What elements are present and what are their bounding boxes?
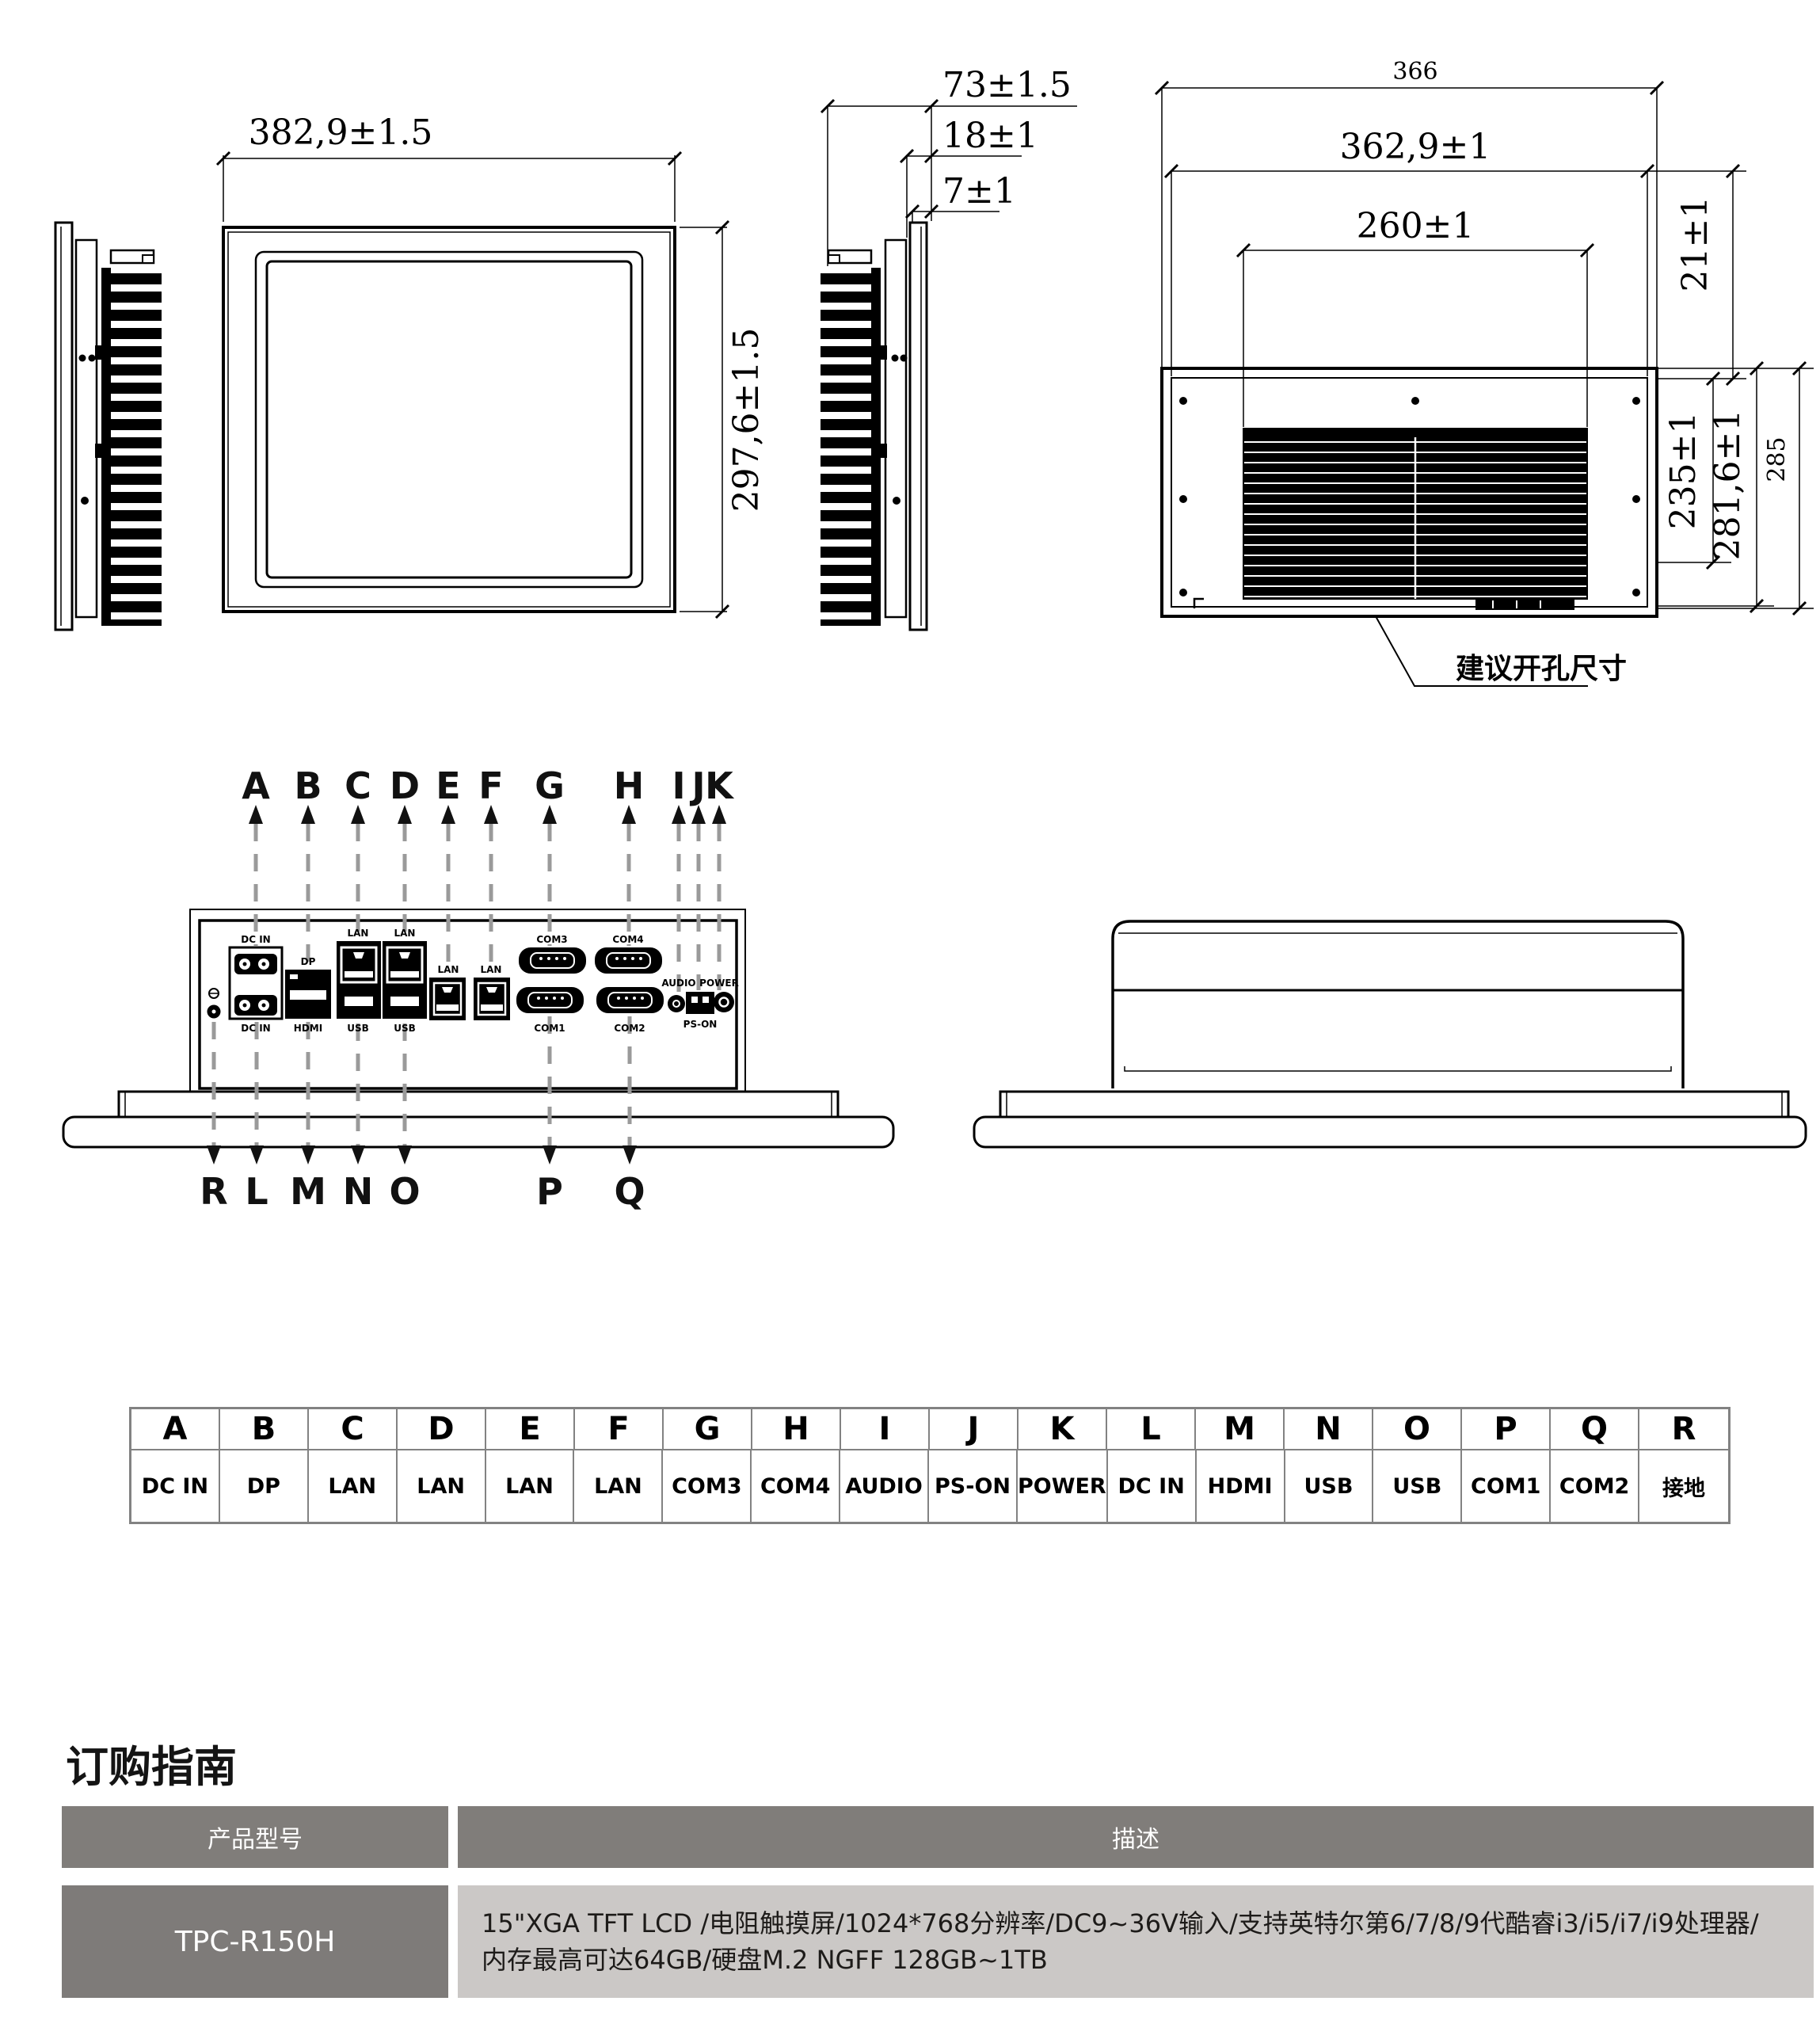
- ordering-title: 订购指南: [66, 1732, 237, 1794]
- arrowhead-down-icon: [351, 1145, 365, 1164]
- panel-port-label: DC IN: [241, 934, 270, 945]
- map-letter-B: B: [220, 1409, 309, 1450]
- map-label-B: DP: [220, 1450, 309, 1522]
- map-label-K: POWER: [1018, 1450, 1108, 1522]
- map-label-P: COM1: [1462, 1450, 1551, 1522]
- annot-letter-B: B: [294, 764, 322, 807]
- map-label-D: LAN: [398, 1450, 486, 1522]
- map-label-L: DC IN: [1108, 1450, 1197, 1522]
- annot-letter-L: L: [245, 1170, 268, 1213]
- map-label-J: PS-ON: [929, 1450, 1018, 1522]
- map-letter-O: O: [1373, 1409, 1462, 1450]
- arrowhead-up-icon: [691, 805, 706, 824]
- panel-port-label: PS-ON: [683, 1019, 718, 1030]
- dim-heatsink-width: 260±1: [1357, 206, 1475, 246]
- map-letter-P: P: [1462, 1409, 1551, 1450]
- panel-port-label: COM3: [536, 934, 567, 945]
- map-label-C: LAN: [309, 1450, 398, 1522]
- map-label-H: COM4: [752, 1450, 840, 1522]
- side-view-left: [55, 223, 162, 630]
- map-label-F: LAN: [574, 1450, 663, 1522]
- arrowhead-down-icon: [398, 1145, 412, 1164]
- dim-side-total: 73±1.5: [942, 65, 1072, 105]
- panel-port-label: LAN: [481, 964, 502, 975]
- annot-letter-F: F: [478, 764, 503, 807]
- annot-letter-H: H: [614, 764, 645, 807]
- map-label-G: COM3: [663, 1450, 752, 1522]
- panel-port-label: DP: [301, 956, 316, 967]
- map-letter-C: C: [309, 1409, 398, 1450]
- arrowhead-up-icon: [484, 805, 498, 824]
- panel-port-label: LAN: [394, 928, 416, 939]
- annot-letter-P: P: [536, 1170, 563, 1213]
- port-map-letters-row: ABCDEFGHIJKLMNOPQR: [131, 1409, 1728, 1450]
- annot-letter-M: M: [290, 1170, 326, 1213]
- map-letter-H: H: [752, 1409, 841, 1450]
- side-view-mid: 73±1.5 18±1 7±1: [821, 65, 1077, 630]
- annot-letter-G: G: [535, 764, 565, 807]
- map-letter-K: K: [1019, 1409, 1107, 1450]
- dim-rear-total-width: 366: [1392, 58, 1437, 86]
- dim-rear-height: 281,6±1: [1708, 410, 1748, 561]
- panel-port-label: COM1: [534, 1023, 565, 1034]
- panel-port-label: LAN: [348, 928, 369, 939]
- port-map-labels-row: DC INDPLANLANLANLANCOM3COM4AUDIOPS-ONPOW…: [131, 1450, 1728, 1522]
- dim-front-width: 382,9±1.5: [249, 112, 433, 153]
- arrowhead-down-icon: [207, 1145, 221, 1164]
- annot-letter-O: O: [389, 1170, 420, 1213]
- annot-letter-C: C: [345, 764, 371, 807]
- cutout-note: 建议开孔尺寸: [1456, 653, 1627, 685]
- map-letter-J: J: [930, 1409, 1019, 1450]
- panel-port-label: AUDIO: [661, 978, 695, 989]
- map-letter-F: F: [575, 1409, 664, 1450]
- rear-view: 366 362,9±1 260±1 21±1 235±1 281,6±1: [1156, 58, 1814, 686]
- arrowhead-down-icon: [301, 1145, 315, 1164]
- panel-port-label: COM2: [614, 1023, 645, 1034]
- front-view: 382,9±1.5 297,6±1.5: [217, 112, 767, 618]
- technical-drawings: 382,9±1.5 297,6±1.5 73±1.5 18±1: [0, 0, 1820, 1236]
- dim-heatsink-height: 235±1: [1663, 412, 1704, 530]
- map-letter-E: E: [486, 1409, 575, 1450]
- arrowhead-up-icon: [249, 805, 263, 824]
- map-letter-G: G: [664, 1409, 752, 1450]
- dim-rear-offset: 21±1: [1675, 196, 1715, 292]
- panel-port-label: HDMI: [294, 1023, 322, 1034]
- map-letter-A: A: [131, 1409, 220, 1450]
- map-letter-R: R: [1639, 1409, 1728, 1450]
- annot-letter-R: R: [200, 1170, 227, 1213]
- dim-side-front: 7±1: [942, 171, 1016, 212]
- annot-letter-D: D: [390, 764, 420, 807]
- map-letter-M: M: [1196, 1409, 1285, 1450]
- arrowhead-up-icon: [351, 805, 365, 824]
- arrowhead-up-icon: [672, 805, 686, 824]
- dim-rear-total-height: 285: [1763, 436, 1791, 482]
- annot-letter-N: N: [343, 1170, 374, 1213]
- panel-port-label: USB: [347, 1023, 369, 1034]
- ordering-header-model: 产品型号: [62, 1806, 448, 1868]
- map-letter-I: I: [841, 1409, 930, 1450]
- ordering-desc-line2: 内存最高可达64GB/硬盘M.2 NGFF 128GB~1TB: [482, 1942, 1048, 1978]
- annot-letter-A: A: [242, 764, 270, 807]
- map-label-E: LAN: [486, 1450, 575, 1522]
- arrowhead-down-icon: [543, 1145, 557, 1164]
- arrowhead-up-icon: [441, 805, 455, 824]
- annot-letter-E: E: [436, 764, 460, 807]
- dim-side-mid: 18±1: [942, 116, 1038, 156]
- port-map-table: ABCDEFGHIJKLMNOPQR DC INDPLANLANLANLANCO…: [129, 1407, 1731, 1524]
- arrowhead-up-icon: [622, 805, 636, 824]
- annot-letter-Q: Q: [614, 1170, 645, 1213]
- ordering-header-desc: 描述: [458, 1806, 1814, 1868]
- annot-letter-I: I: [672, 764, 685, 807]
- ordering-desc-line1: 15"XGA TFT LCD /电阻触摸屏/1024*768分辨率/DC9~36…: [482, 1905, 1759, 1942]
- annot-letter-J: J: [689, 764, 705, 807]
- arrowhead-down-icon: [623, 1145, 637, 1164]
- map-label-A: DC IN: [131, 1450, 220, 1522]
- arrowhead-up-icon: [712, 805, 726, 824]
- bottom-port-view: [63, 909, 893, 1147]
- map-label-I: AUDIO: [840, 1450, 929, 1522]
- panel-port-label: LAN: [438, 964, 459, 975]
- arrowhead-up-icon: [543, 805, 557, 824]
- ordering-model-cell: TPC-R150H: [62, 1885, 448, 1998]
- panel-port-label: COM4: [612, 934, 643, 945]
- datasheet-page: 382,9±1.5 297,6±1.5 73±1.5 18±1: [0, 0, 1820, 2043]
- map-label-O: USB: [1373, 1450, 1462, 1522]
- panel-port-label: POWER: [699, 978, 739, 989]
- map-letter-Q: Q: [1551, 1409, 1639, 1450]
- dim-front-height: 297,6±1.5: [726, 328, 767, 513]
- map-label-Q: COM2: [1551, 1450, 1639, 1522]
- map-label-N: USB: [1285, 1450, 1374, 1522]
- map-label-M: HDMI: [1197, 1450, 1285, 1522]
- map-letter-N: N: [1285, 1409, 1373, 1450]
- panel-port-label: USB: [394, 1023, 416, 1034]
- ordering-desc-cell: 15"XGA TFT LCD /电阻触摸屏/1024*768分辨率/DC9~36…: [458, 1885, 1814, 1998]
- annot-letter-K: K: [705, 764, 735, 807]
- map-letter-L: L: [1107, 1409, 1196, 1450]
- map-label-R: 接地: [1639, 1450, 1728, 1522]
- arrowhead-up-icon: [398, 805, 412, 824]
- panel-port-label: DC IN: [241, 1023, 270, 1034]
- map-letter-D: D: [398, 1409, 486, 1450]
- arrowhead-up-icon: [301, 805, 315, 824]
- arrowhead-down-icon: [249, 1145, 264, 1164]
- top-view: [974, 921, 1806, 1147]
- dim-rear-width: 362,9±1: [1340, 127, 1491, 167]
